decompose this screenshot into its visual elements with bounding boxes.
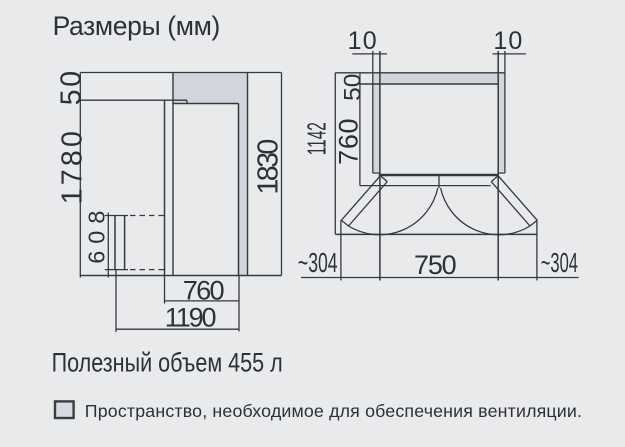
- svg-text:1142: 1142: [302, 122, 331, 155]
- svg-text:10: 10: [348, 27, 378, 55]
- svg-text:10: 10: [493, 27, 523, 55]
- svg-text:1190: 1190: [165, 302, 216, 332]
- svg-text:50: 50: [339, 74, 366, 101]
- svg-text:760: 760: [183, 275, 225, 306]
- svg-text:Размеры (мм): Размеры (мм): [53, 11, 220, 41]
- svg-text:Пространство, необходимое для: Пространство, необходимое для обеспечени…: [85, 401, 582, 421]
- svg-text:Полезный объем 455 л: Полезный объем 455 л: [52, 348, 283, 378]
- svg-text:750: 750: [414, 250, 456, 280]
- svg-text:~304: ~304: [541, 246, 578, 278]
- svg-text:50: 50: [55, 68, 87, 105]
- svg-text:1830: 1830: [253, 140, 285, 195]
- svg-text:608: 608: [84, 204, 110, 264]
- svg-text:~304: ~304: [298, 247, 338, 278]
- svg-text:1780: 1780: [57, 128, 89, 204]
- svg-text:760: 760: [333, 118, 363, 165]
